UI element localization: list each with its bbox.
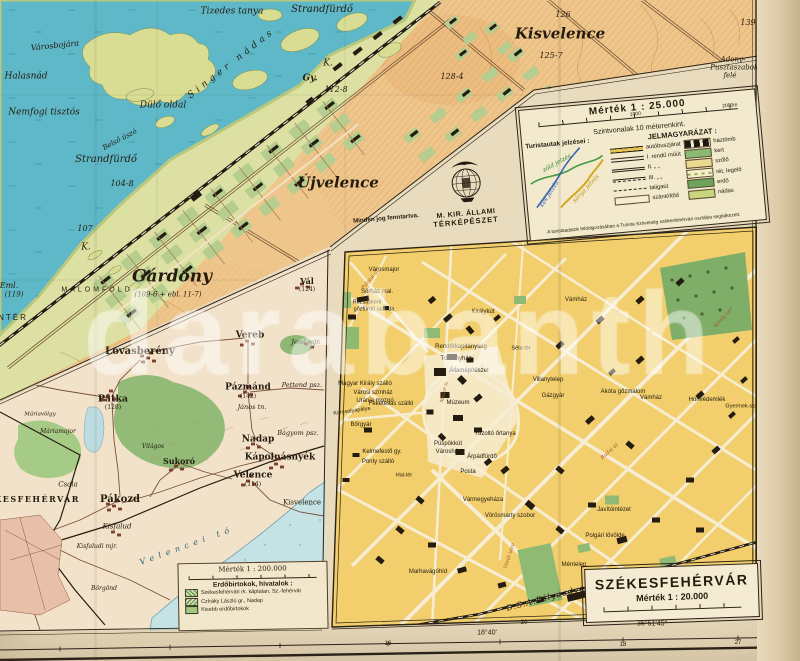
legend-item: Kisebb erdőbirtokok <box>179 604 327 615</box>
green-swatch <box>185 606 198 614</box>
legend-item-label: II. „ „ <box>648 164 660 171</box>
legend-route-items: autóbuszjáratI. rendű műútII. „ „III. „ … <box>610 139 686 206</box>
scale-bar-mid-label: 1000 <box>630 111 642 118</box>
city-title-box: SZÉKESFEHÉRVÁR Mérték 1 : 20.000 <box>584 563 760 623</box>
legend-item-label: erdő <box>717 178 729 185</box>
road3-swatch <box>613 177 646 183</box>
legend-item-label: nádas <box>718 188 734 195</box>
legend-area-items: háztömbkertszőlőrét, legelőerdőnádas <box>683 134 744 200</box>
legend-item-label: taligaút <box>649 184 668 192</box>
legend-item-label: kert <box>714 148 724 155</box>
tourist-path-samples: zöld jelzéskék jelzéssárga jelzés <box>526 143 609 212</box>
scale-bar-20000 <box>603 603 741 613</box>
legend-item-label: szőlő <box>715 158 729 165</box>
legend-item-label: szántóföld <box>652 193 679 201</box>
reed-swatch <box>688 188 716 199</box>
hatch2-swatch <box>185 598 198 606</box>
state-cartography-globe-logo-icon <box>440 156 492 206</box>
patka-reservoir <box>84 407 104 452</box>
overview-scale: Mérték 1 : 200.000 <box>178 564 326 575</box>
field-swatch <box>614 194 650 205</box>
legend-item-label: Kisebb erdőbirtokok <box>201 607 249 614</box>
road1-swatch <box>611 156 644 163</box>
legend-item-label: III. „ „ <box>648 174 662 181</box>
forest-legend-box: Mérték 1 : 200.000 Erdőbirtokok, hivatal… <box>177 561 328 632</box>
paper-margin-right <box>757 0 800 661</box>
road2-swatch <box>612 166 645 172</box>
forest-legend-items: Székesfehérvári rk. káptalan, Sz.-fehérv… <box>179 587 327 615</box>
bus-swatch <box>610 145 643 153</box>
hatch1-swatch <box>185 589 198 597</box>
cart-swatch <box>614 188 647 192</box>
scale-bar-200000 <box>189 574 317 580</box>
legend-item-label: háztömb <box>713 137 736 145</box>
legend-item-label: Czíráky László gr., Nadap <box>201 598 263 605</box>
legend-item-label: rét, legelő <box>716 167 742 175</box>
scanned-map-photo: VárosbojáraHalasnádNemfogi tisztósTizede… <box>0 0 800 661</box>
